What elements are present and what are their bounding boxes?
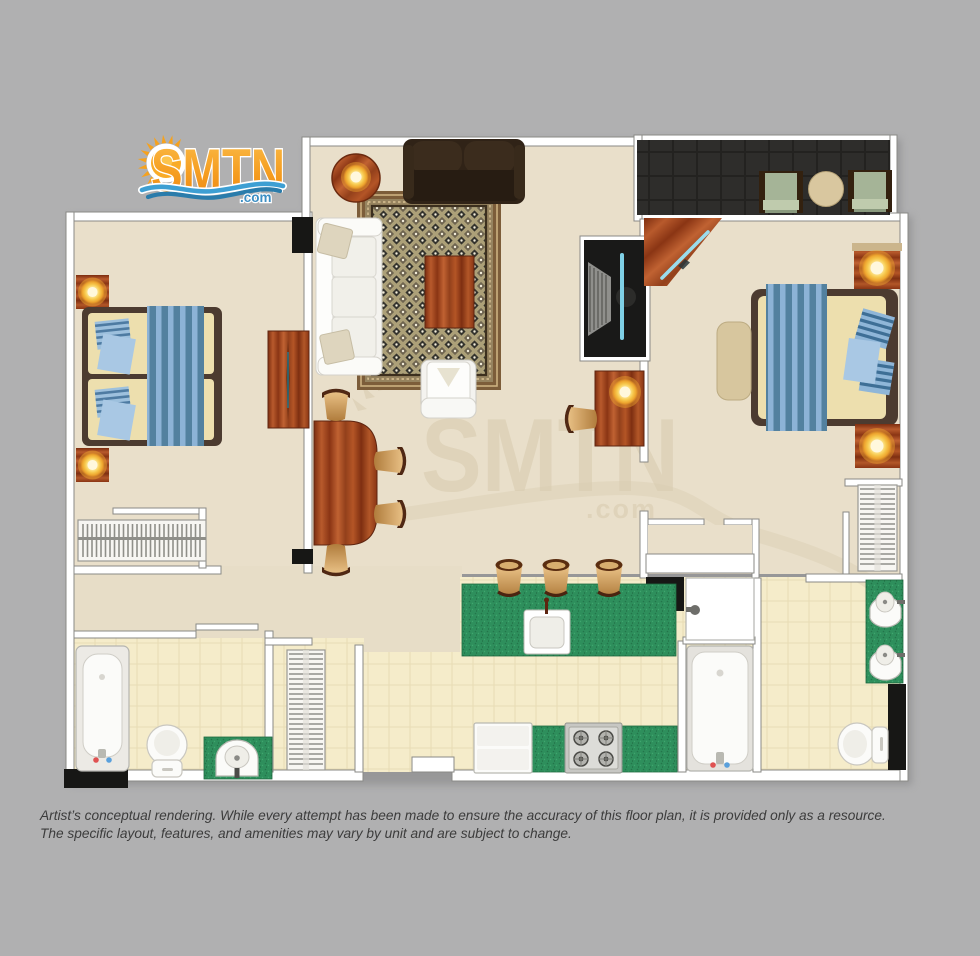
svg-text:The specific layout, features,: The specific layout, features, and ameni…	[40, 826, 572, 841]
svg-text:.com: .com	[240, 190, 272, 205]
svg-text:Artist’s conceptual rendering.: Artist’s conceptual rendering. While eve…	[39, 808, 886, 823]
